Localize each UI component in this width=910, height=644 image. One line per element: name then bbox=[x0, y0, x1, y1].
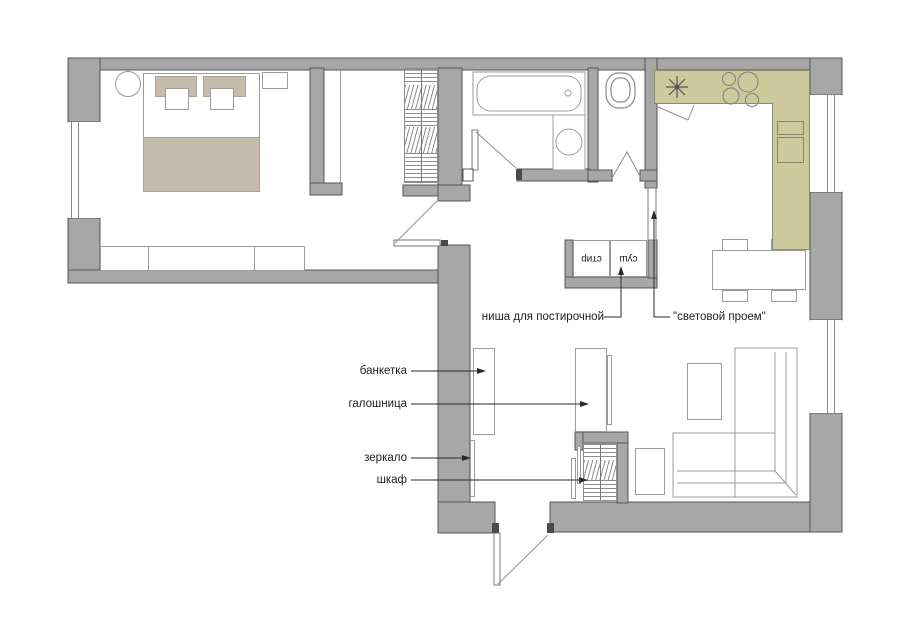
light-opening-arrow bbox=[651, 210, 657, 219]
entrance-door-swing bbox=[498, 535, 548, 584]
bench-arrow bbox=[477, 368, 486, 374]
bench-label: банкетка bbox=[307, 365, 407, 378]
burner bbox=[746, 94, 759, 107]
mirror-arrow bbox=[462, 455, 471, 461]
washbasin bbox=[553, 115, 585, 170]
doors bbox=[394, 105, 694, 585]
entrance-door-stop bbox=[547, 523, 554, 533]
entrance-door-leaf bbox=[494, 533, 500, 585]
bedroom-door-stop bbox=[441, 240, 448, 246]
light-opening-leader bbox=[654, 218, 670, 317]
wc-bifold-door bbox=[612, 152, 641, 178]
dryer-label: суш bbox=[610, 240, 647, 277]
bedroom-door-leaf bbox=[394, 240, 440, 246]
corner-sofa bbox=[673, 348, 797, 497]
fixtures-layer bbox=[0, 0, 910, 644]
mirror-label: зеркало bbox=[307, 452, 407, 465]
bedroom-door-swing bbox=[395, 201, 437, 243]
bathroom-door-leaf bbox=[472, 130, 478, 170]
floor-plan: стир суш bbox=[0, 0, 910, 644]
burner bbox=[738, 72, 758, 92]
wardrobe-arrow bbox=[579, 477, 588, 483]
wardrobe-label: шкаф bbox=[307, 474, 407, 487]
washer-label: стир bbox=[573, 240, 610, 277]
light-opening-label: "световой проем" bbox=[673, 311, 766, 324]
kitchen-door-leaf bbox=[656, 106, 688, 120]
bathtub bbox=[473, 72, 585, 115]
bathroom-door-swing bbox=[476, 132, 516, 168]
shoe-cabinet-arrow bbox=[580, 401, 589, 407]
entrance-door-stop bbox=[492, 523, 499, 533]
laundry-niche-leader bbox=[604, 274, 621, 317]
cooktop bbox=[723, 72, 759, 107]
kitchen-door-swing bbox=[688, 105, 694, 120]
bathroom-door-stop bbox=[516, 169, 522, 180]
washbasin-bowl bbox=[556, 129, 582, 155]
bathtub-outer bbox=[473, 72, 585, 115]
burner bbox=[723, 88, 739, 104]
toilet bbox=[606, 73, 635, 108]
bathroom-door-jamb bbox=[463, 169, 473, 181]
laundry-niche-label: ниша для постирочной bbox=[480, 311, 604, 324]
burner bbox=[723, 73, 736, 86]
sink-icon bbox=[666, 76, 688, 98]
shoe-cabinet-label: галошница bbox=[307, 398, 407, 411]
